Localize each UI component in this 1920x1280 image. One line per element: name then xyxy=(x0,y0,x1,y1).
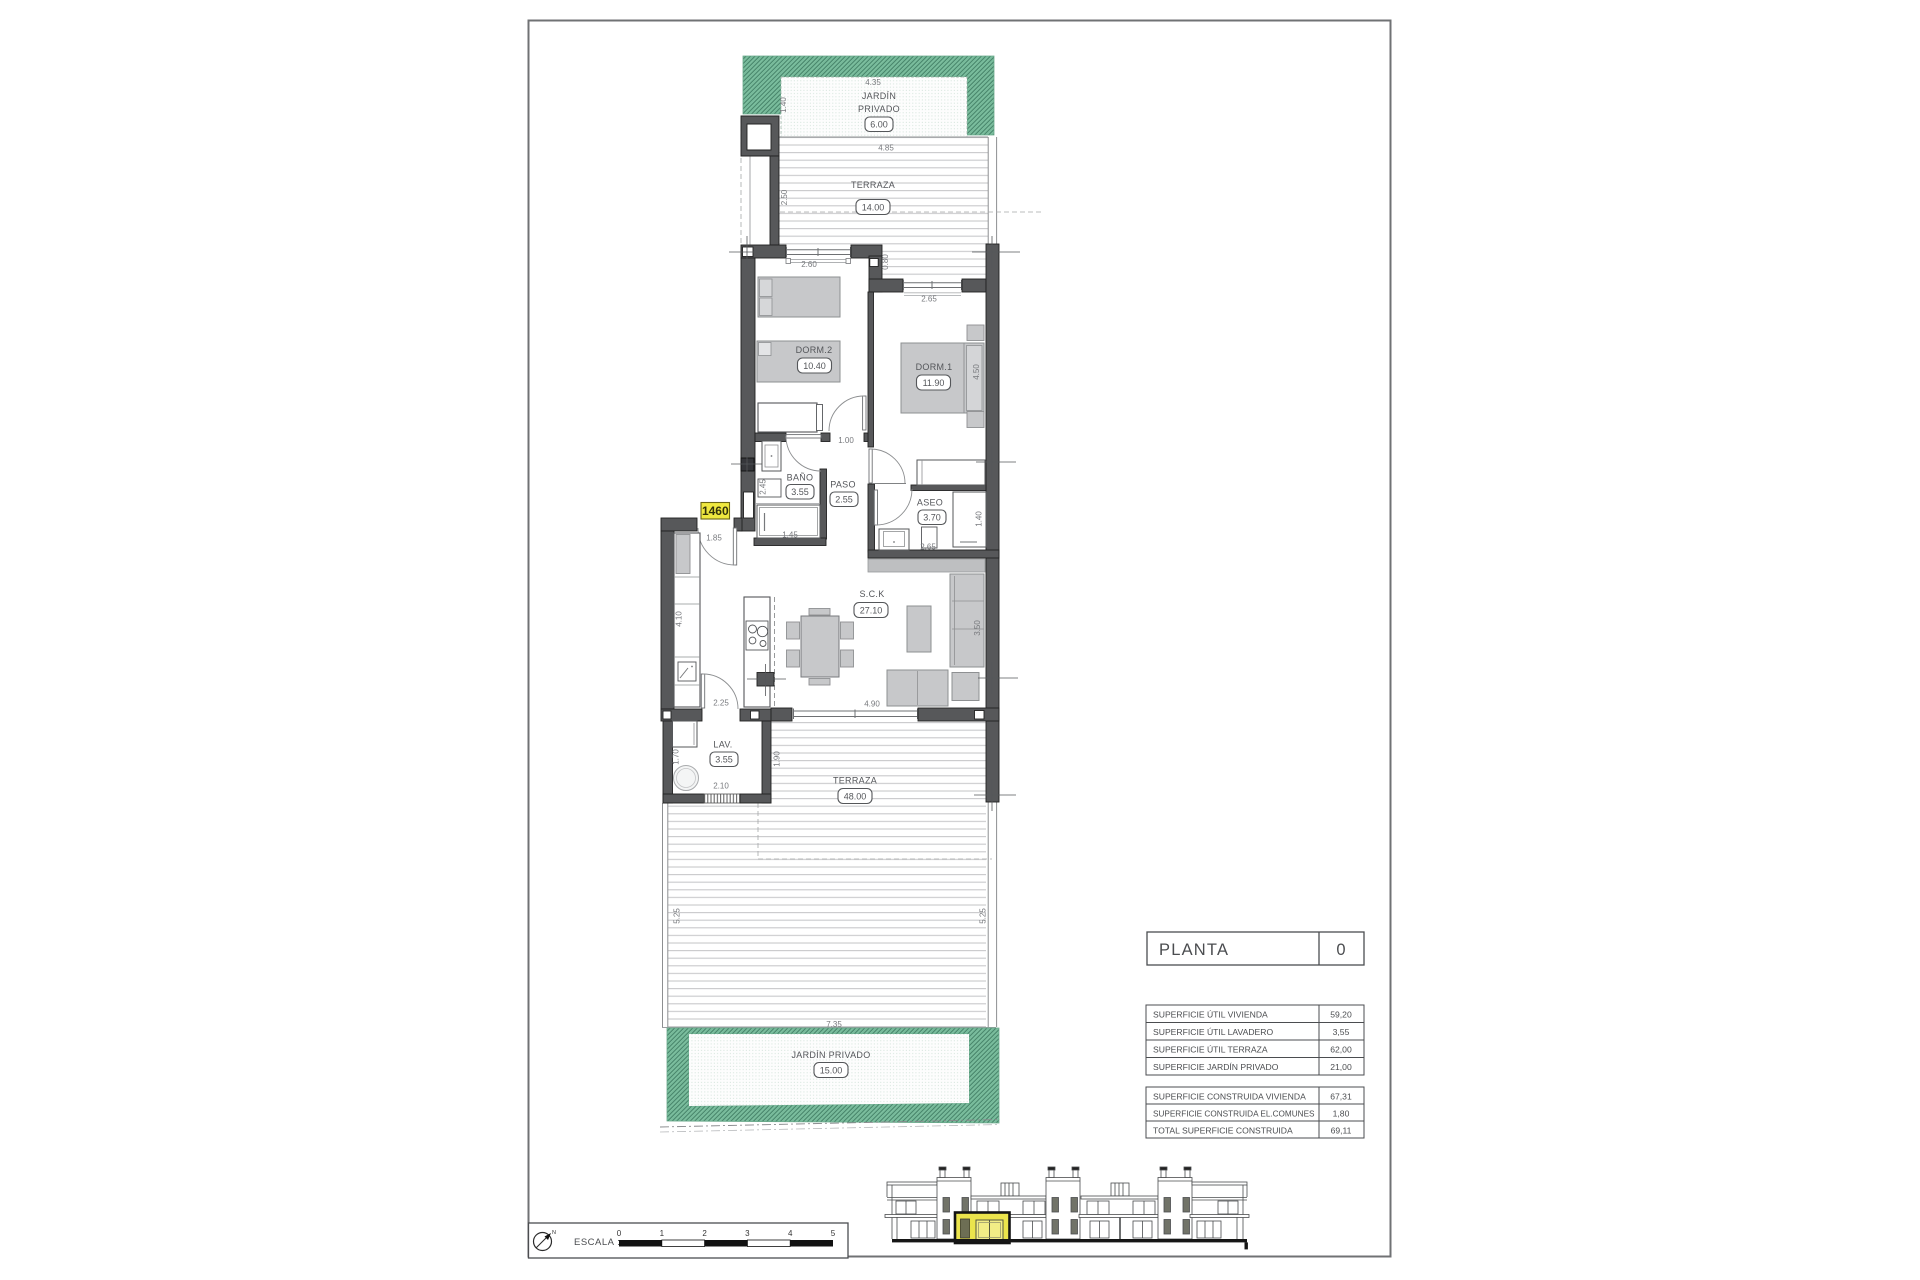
svg-text:3.70: 3.70 xyxy=(923,513,941,523)
svg-text:ASEO: ASEO xyxy=(917,498,943,508)
svg-text:4.90: 4.90 xyxy=(864,700,880,709)
svg-text:3,55: 3,55 xyxy=(1333,1027,1350,1037)
svg-text:27.10: 27.10 xyxy=(860,605,883,615)
svg-text:2.65: 2.65 xyxy=(920,543,936,552)
svg-text:JARDÍN: JARDÍN xyxy=(862,91,896,101)
svg-text:DORM.1: DORM.1 xyxy=(916,362,953,372)
svg-text:0: 0 xyxy=(617,1229,622,1238)
svg-text:1.45: 1.45 xyxy=(782,531,798,540)
svg-text:10.40: 10.40 xyxy=(803,361,826,371)
svg-text:0: 0 xyxy=(1336,941,1345,959)
svg-text:6.00: 6.00 xyxy=(870,120,888,130)
svg-text:SUPERFICIE CONSTRUIDA EL.COMUN: SUPERFICIE CONSTRUIDA EL.COMUNES xyxy=(1153,1110,1315,1119)
svg-text:4: 4 xyxy=(788,1229,793,1238)
svg-text:PLANTA: PLANTA xyxy=(1159,941,1229,959)
svg-text:TERRAZA: TERRAZA xyxy=(833,776,877,786)
svg-text:2.60: 2.60 xyxy=(801,260,817,269)
svg-text:4.35: 4.35 xyxy=(865,78,881,87)
svg-text:TOTAL SUPERFICIE CONSTRUIDA: TOTAL SUPERFICIE CONSTRUIDA xyxy=(1153,1126,1293,1136)
svg-text:1.40: 1.40 xyxy=(779,97,788,113)
svg-text:2.50: 2.50 xyxy=(780,189,789,205)
svg-text:N: N xyxy=(552,1230,556,1236)
svg-text:0.80: 0.80 xyxy=(881,254,890,270)
svg-text:SUPERFICIE CONSTRUIDA VIVIENDA: SUPERFICIE CONSTRUIDA VIVIENDA xyxy=(1153,1092,1306,1102)
svg-text:14.00: 14.00 xyxy=(862,202,885,212)
svg-text:2.25: 2.25 xyxy=(713,699,729,708)
svg-text:1460: 1460 xyxy=(702,504,729,518)
svg-text:62,00: 62,00 xyxy=(1330,1045,1352,1055)
svg-text:48.00: 48.00 xyxy=(844,791,867,801)
svg-text:BAÑO: BAÑO xyxy=(787,473,814,483)
svg-text:SUPERFICIE ÚTIL LAVADERO: SUPERFICIE ÚTIL LAVADERO xyxy=(1153,1027,1273,1037)
svg-text:59,20: 59,20 xyxy=(1330,1010,1352,1020)
svg-text:1.90: 1.90 xyxy=(773,751,782,767)
svg-text:1,80: 1,80 xyxy=(1333,1109,1350,1119)
svg-text:2.45: 2.45 xyxy=(759,479,768,495)
svg-text:PASO: PASO xyxy=(830,480,856,490)
svg-text:PRIVADO: PRIVADO xyxy=(858,104,900,114)
svg-text:1: 1 xyxy=(660,1229,665,1238)
svg-text:3.55: 3.55 xyxy=(791,487,809,497)
svg-text:5.25: 5.25 xyxy=(979,908,988,924)
svg-text:1.85: 1.85 xyxy=(706,534,722,543)
svg-text:S.C.K: S.C.K xyxy=(859,589,884,599)
svg-text:5: 5 xyxy=(831,1229,836,1238)
svg-text:4.85: 4.85 xyxy=(878,144,894,153)
svg-text:3: 3 xyxy=(745,1229,750,1238)
svg-text:SUPERFICIE ÚTIL TERRAZA: SUPERFICIE ÚTIL TERRAZA xyxy=(1153,1045,1268,1055)
svg-text:4.50: 4.50 xyxy=(972,364,981,380)
svg-text:3.55: 3.55 xyxy=(715,755,733,765)
svg-text:2.10: 2.10 xyxy=(713,782,729,791)
svg-text:JARDÍN PRIVADO: JARDÍN PRIVADO xyxy=(791,1050,870,1060)
svg-text:2: 2 xyxy=(702,1229,707,1238)
svg-text:15.00: 15.00 xyxy=(820,1065,843,1075)
svg-text:67,31: 67,31 xyxy=(1330,1092,1352,1102)
svg-text:2.55: 2.55 xyxy=(835,495,853,505)
svg-text:1.70: 1.70 xyxy=(672,749,681,765)
svg-text:ESCALA :: ESCALA : xyxy=(574,1237,620,1248)
svg-text:11.90: 11.90 xyxy=(923,378,945,388)
svg-text:5.25: 5.25 xyxy=(673,908,682,924)
svg-text:DORM.2: DORM.2 xyxy=(796,345,833,355)
svg-text:7.35: 7.35 xyxy=(826,1020,842,1029)
svg-text:1.00: 1.00 xyxy=(838,436,854,445)
svg-text:4.10: 4.10 xyxy=(675,611,684,627)
svg-text:TERRAZA: TERRAZA xyxy=(851,180,895,190)
svg-text:LAV.: LAV. xyxy=(713,740,732,750)
svg-text:1.40: 1.40 xyxy=(975,511,984,527)
svg-text:SUPERFICIE JARDÍN PRIVADO: SUPERFICIE JARDÍN PRIVADO xyxy=(1153,1062,1279,1072)
svg-text:69,11: 69,11 xyxy=(1331,1126,1352,1136)
svg-text:3.50: 3.50 xyxy=(973,620,982,636)
svg-text:SUPERFICIE ÚTIL VIVIENDA: SUPERFICIE ÚTIL VIVIENDA xyxy=(1153,1010,1268,1020)
svg-text:2.65: 2.65 xyxy=(921,295,937,304)
svg-text:21,00: 21,00 xyxy=(1330,1062,1352,1072)
